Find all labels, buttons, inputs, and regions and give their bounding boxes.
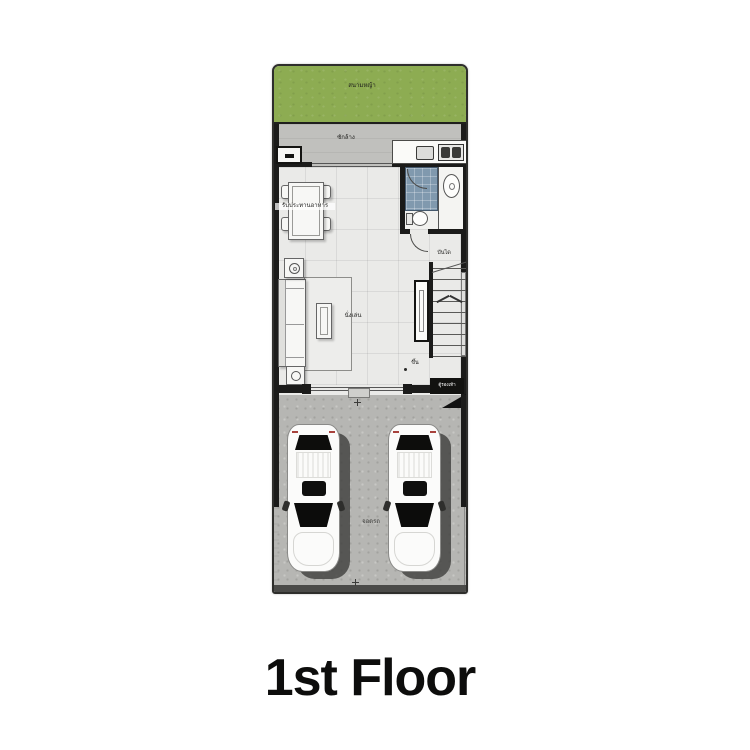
tail-light-icon [430, 431, 436, 433]
shower-door-arc [407, 169, 427, 189]
rear-window [295, 435, 332, 450]
side-mirror-icon [383, 500, 392, 511]
back-sliding-door-track [312, 166, 392, 167]
side-mirror-icon [282, 500, 291, 511]
sofa [278, 279, 306, 367]
windshield [294, 503, 333, 527]
utility-niche [276, 146, 302, 164]
stair-hall-label: บันได [424, 250, 464, 256]
garage-left-wall [274, 395, 279, 507]
car-left [287, 424, 351, 576]
car-roof [397, 452, 432, 478]
bath-bottom-wall-left [400, 229, 410, 234]
garden-label: สนามหญ้า [332, 83, 392, 90]
car-hood [293, 532, 334, 566]
car-body [287, 424, 340, 572]
front-column [302, 384, 311, 394]
basin-counter [438, 167, 463, 229]
kitchen-counter [392, 140, 468, 164]
front-wall-right [412, 385, 430, 393]
sofa-back [279, 280, 286, 366]
garage-right-boundary [464, 507, 465, 585]
floor-caption: 1st Floor [265, 648, 476, 708]
shoe-cabinet: ตู้รองเท้า [430, 378, 464, 394]
toilet-icon [406, 210, 430, 228]
garden-area: สนามหญ้า [274, 66, 466, 124]
sunroof [403, 481, 427, 496]
side-table [286, 366, 305, 385]
dining-label: รับประทานอาหาร [275, 203, 335, 210]
sunroof [302, 481, 326, 496]
side-table [284, 258, 304, 278]
stairs [433, 268, 466, 358]
washbasin-icon [443, 174, 460, 198]
front-wall-left [274, 385, 302, 393]
shower-tile [405, 167, 438, 211]
car-body [388, 424, 441, 572]
driveway-edge [274, 585, 466, 592]
back-sliding-door [312, 163, 392, 164]
stove-icon [416, 146, 434, 160]
bath-bottom-wall-right [428, 229, 468, 234]
car-roof [296, 452, 331, 478]
tail-light-icon [329, 431, 335, 433]
garage-right-wall [461, 395, 466, 507]
floor-plan: สนามหญ้า ซักล้าง [272, 64, 468, 594]
stair-up-dot [404, 368, 407, 371]
living-label: นั่งเล่น [338, 313, 368, 320]
tail-light-icon [393, 431, 399, 433]
parking-label: จอดรถ [354, 519, 388, 526]
rear-window [396, 435, 433, 450]
tail-light-icon [292, 431, 298, 433]
wash-label: ซักล้าง [318, 135, 374, 142]
level-mark-icon [352, 579, 359, 586]
plant-icon [289, 263, 300, 274]
coffee-table [316, 303, 332, 339]
garage-left-fence [274, 507, 279, 585]
car-right [388, 424, 452, 576]
utility-fixture [285, 154, 294, 158]
stair-up-label: ขึ้น [408, 360, 422, 366]
dining-table [288, 182, 324, 240]
level-mark-icon [354, 399, 361, 406]
sink-icon [438, 144, 464, 161]
car-hood [394, 532, 435, 566]
windshield [395, 503, 434, 527]
entry-step [348, 388, 370, 398]
front-column [403, 384, 412, 394]
stair-storage [414, 280, 429, 342]
plant-icon [291, 371, 301, 381]
